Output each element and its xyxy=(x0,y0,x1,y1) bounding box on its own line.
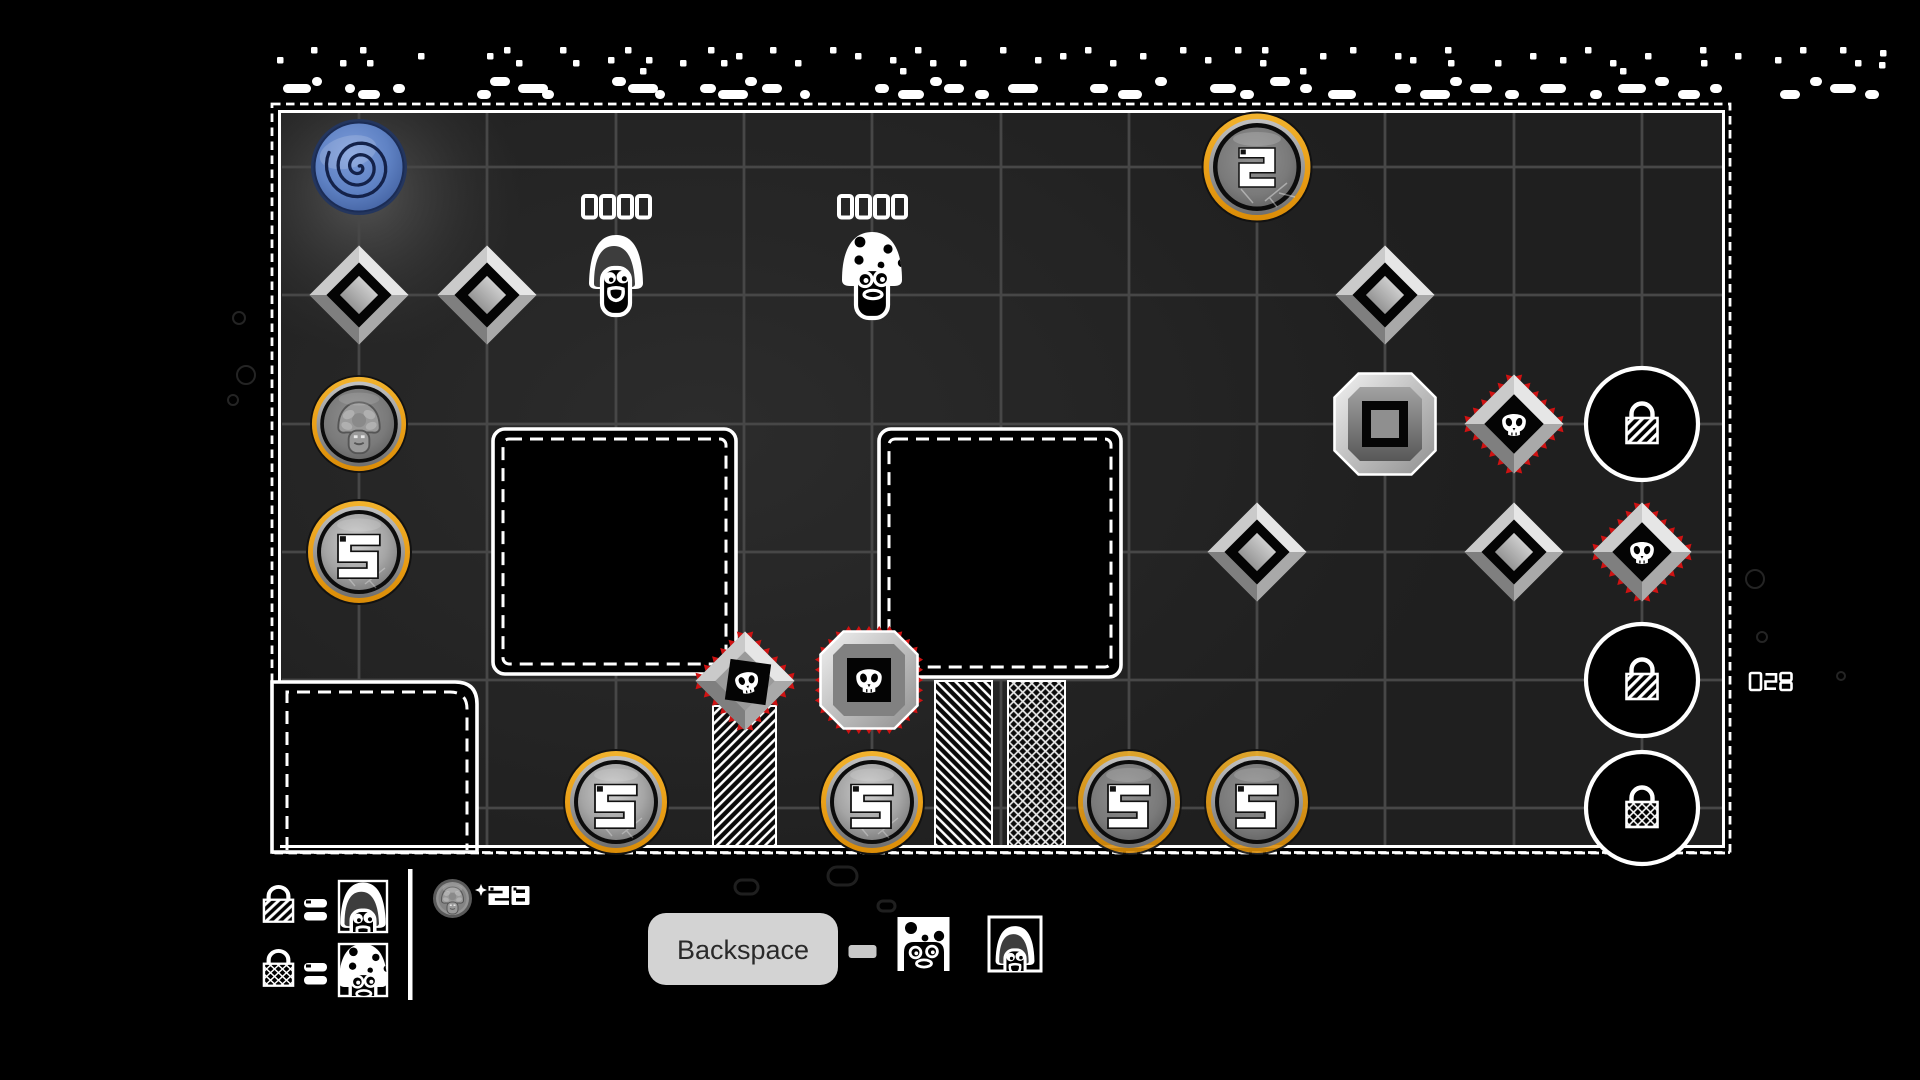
svg-text:Backspace: Backspace xyxy=(677,935,809,965)
